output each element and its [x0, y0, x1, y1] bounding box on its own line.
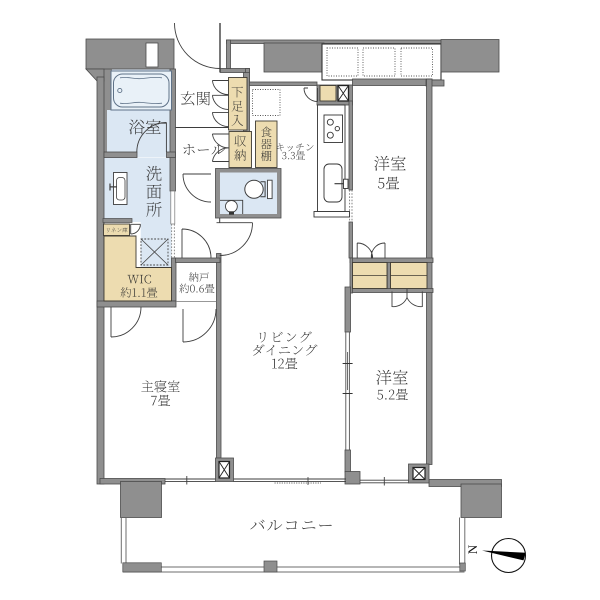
- svg-text:N: N: [465, 544, 480, 554]
